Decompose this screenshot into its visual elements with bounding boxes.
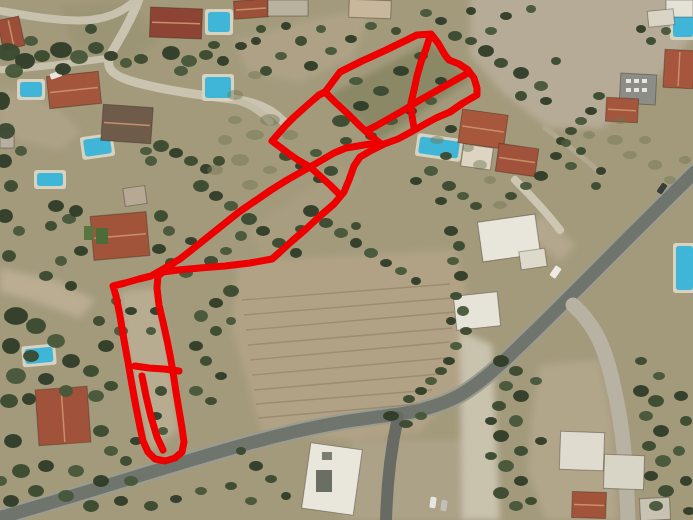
tree — [575, 117, 587, 125]
tree — [4, 180, 18, 192]
tree — [393, 66, 409, 76]
tree — [304, 61, 318, 71]
tree — [679, 156, 691, 164]
tree — [281, 492, 291, 500]
tree — [48, 200, 64, 212]
tree — [513, 390, 529, 402]
building-detail — [626, 88, 631, 92]
tree — [411, 277, 421, 285]
tree — [478, 45, 494, 57]
tree — [565, 162, 577, 170]
building-roof — [603, 454, 644, 489]
tree — [435, 367, 447, 375]
tree — [249, 461, 263, 471]
tree — [215, 372, 227, 380]
tree — [499, 381, 513, 391]
tree — [74, 246, 88, 256]
tree — [399, 420, 413, 428]
tree — [648, 160, 662, 170]
tree — [514, 446, 528, 456]
tree — [226, 317, 236, 325]
tree — [593, 92, 605, 100]
tree — [248, 71, 262, 79]
tree — [275, 52, 287, 60]
tree — [565, 127, 577, 135]
tree — [648, 395, 664, 407]
tree — [38, 460, 54, 472]
tree — [551, 57, 561, 65]
tree — [674, 391, 688, 401]
tree — [505, 192, 517, 200]
tree — [207, 165, 223, 175]
tree — [316, 25, 326, 33]
tree — [213, 156, 225, 166]
tree — [65, 281, 77, 291]
building — [458, 109, 508, 149]
tree — [509, 415, 523, 427]
tree — [104, 51, 118, 61]
tree — [561, 139, 571, 147]
tree — [281, 22, 291, 30]
pool-water — [37, 173, 63, 186]
tree — [174, 66, 188, 76]
tree — [245, 497, 257, 505]
tree — [383, 411, 399, 421]
tree — [445, 125, 457, 133]
tree — [649, 501, 663, 511]
tree — [498, 460, 514, 472]
tree — [6, 368, 26, 384]
building-detail — [322, 452, 332, 460]
tree — [435, 17, 447, 25]
building — [149, 7, 202, 39]
tree — [93, 316, 105, 326]
building — [268, 0, 308, 16]
tree — [290, 248, 302, 258]
tree — [235, 231, 247, 241]
tree — [473, 160, 487, 170]
tree — [4, 434, 22, 448]
building-detail — [634, 88, 639, 92]
tree — [34, 50, 50, 62]
building — [233, 0, 268, 19]
tree — [246, 130, 264, 140]
tree — [265, 475, 277, 483]
building — [519, 248, 547, 269]
building-detail — [626, 79, 631, 83]
tree — [50, 42, 72, 58]
tree — [228, 116, 242, 124]
tree — [440, 152, 452, 160]
tree — [614, 116, 626, 124]
tree — [169, 148, 183, 158]
tree — [120, 456, 132, 466]
tree — [462, 144, 474, 152]
tree — [210, 326, 222, 336]
tree — [514, 476, 528, 486]
tree — [58, 490, 74, 502]
tree — [0, 394, 18, 408]
tree — [295, 36, 307, 46]
swimming-pool — [673, 243, 693, 293]
tree — [635, 357, 647, 365]
tree — [120, 58, 132, 68]
tree — [513, 67, 529, 79]
building-roof — [559, 431, 604, 471]
tree — [435, 197, 447, 205]
tree — [639, 136, 651, 144]
building-roof — [519, 248, 547, 269]
tree — [646, 37, 656, 45]
tree — [88, 42, 104, 54]
tree — [636, 25, 646, 33]
tree — [680, 476, 692, 486]
tree — [5, 64, 23, 78]
tree — [83, 365, 99, 377]
tree — [500, 12, 512, 20]
tree — [492, 401, 506, 411]
tree — [68, 465, 84, 477]
tree — [260, 114, 280, 126]
tree — [218, 135, 232, 145]
swimming-pool — [205, 9, 233, 35]
tree — [93, 475, 109, 487]
tree — [225, 482, 237, 490]
tree — [607, 135, 623, 145]
tree — [184, 156, 198, 166]
tree — [350, 238, 362, 248]
building-detail — [84, 226, 94, 240]
tree — [189, 341, 203, 351]
tree — [223, 285, 239, 297]
tree — [493, 355, 509, 367]
tree — [39, 271, 53, 281]
tree — [70, 50, 88, 64]
tree — [353, 101, 369, 111]
building — [603, 454, 644, 489]
tree — [199, 50, 213, 60]
tree — [38, 373, 54, 385]
tree — [124, 476, 138, 486]
tree — [2, 338, 20, 354]
tree — [644, 471, 658, 481]
building-detail — [96, 228, 108, 244]
tree — [457, 192, 469, 200]
building-detail — [316, 470, 332, 492]
tree — [642, 441, 656, 451]
tree — [658, 485, 674, 497]
tree — [231, 154, 249, 166]
tree — [208, 41, 220, 49]
tree — [673, 446, 685, 456]
tree — [596, 167, 606, 175]
building — [101, 104, 153, 143]
tree — [365, 22, 377, 30]
tree — [12, 464, 30, 478]
tree — [351, 222, 361, 230]
tree — [325, 47, 337, 55]
tree — [55, 256, 67, 266]
tree — [550, 152, 562, 160]
building-roof — [647, 9, 675, 28]
tree — [209, 191, 223, 201]
tree — [256, 25, 266, 33]
tree — [155, 386, 167, 396]
tree — [69, 205, 83, 217]
tree — [623, 151, 637, 159]
tree — [125, 307, 137, 315]
tree — [170, 495, 182, 503]
tree — [251, 37, 261, 45]
tree — [152, 244, 166, 254]
tree — [493, 201, 507, 209]
building — [495, 143, 539, 176]
swimming-pool — [17, 79, 45, 100]
tree — [430, 136, 444, 144]
tree — [530, 377, 542, 385]
tree — [540, 97, 552, 105]
tree — [62, 354, 80, 368]
tree — [443, 357, 455, 365]
building — [647, 9, 675, 28]
tree — [534, 81, 548, 91]
tree — [493, 430, 509, 442]
tree — [162, 46, 180, 60]
tree — [424, 166, 438, 176]
tree — [13, 226, 25, 236]
tree — [134, 54, 148, 64]
parcel-boundary-divider-strip-cross — [135, 366, 179, 371]
tree — [444, 226, 458, 236]
tree — [576, 147, 586, 155]
tree — [334, 228, 348, 238]
tree — [209, 298, 223, 308]
building — [349, 0, 392, 19]
tree — [585, 107, 597, 115]
tree — [494, 58, 508, 68]
tree — [457, 306, 469, 316]
tree — [28, 485, 44, 497]
tree — [220, 247, 232, 255]
tree — [415, 387, 427, 395]
tree — [227, 90, 243, 100]
building-detail — [634, 79, 639, 83]
tree — [205, 397, 217, 405]
tree — [195, 487, 207, 495]
tree — [22, 393, 36, 405]
tree — [485, 27, 497, 35]
tree — [349, 77, 363, 85]
tree — [45, 221, 57, 231]
tree — [364, 248, 378, 258]
tree — [241, 213, 257, 225]
tree — [104, 446, 118, 456]
tree — [153, 140, 169, 152]
tree — [655, 455, 671, 467]
tree — [515, 91, 527, 101]
aerial-photo-canvas — [0, 0, 693, 520]
tree — [55, 63, 71, 75]
tree — [395, 267, 407, 275]
tree — [415, 412, 427, 420]
building-detail — [642, 79, 647, 83]
tree — [104, 381, 118, 391]
tree — [256, 226, 270, 236]
tree — [450, 342, 462, 350]
building-roof — [268, 0, 308, 16]
tree — [235, 42, 247, 50]
swimming-pool — [34, 170, 66, 189]
tree — [484, 176, 496, 184]
tree — [345, 35, 357, 43]
tree — [653, 372, 665, 380]
tree — [2, 250, 16, 262]
tree — [200, 356, 212, 366]
tree — [583, 131, 595, 139]
pool-water — [208, 12, 230, 32]
tree — [24, 36, 38, 46]
tree — [535, 437, 547, 445]
tree — [534, 171, 548, 181]
tree — [460, 327, 472, 335]
tree — [85, 24, 97, 34]
tree — [470, 202, 482, 210]
building — [663, 49, 693, 89]
tree — [193, 180, 209, 192]
tree — [661, 27, 671, 35]
tree — [26, 318, 46, 334]
tree — [450, 292, 462, 300]
tree — [446, 317, 456, 325]
tree — [4, 307, 28, 325]
tree — [391, 27, 401, 35]
building-roof — [349, 0, 392, 19]
tree — [236, 447, 246, 455]
tree — [526, 5, 536, 13]
tree — [520, 182, 532, 190]
tree — [145, 156, 157, 166]
tree — [3, 495, 19, 507]
tree — [680, 416, 692, 426]
tree — [154, 210, 168, 222]
tree — [420, 9, 432, 17]
tree — [194, 310, 208, 322]
tree — [653, 425, 669, 437]
tree — [466, 7, 476, 15]
tree — [163, 226, 175, 236]
tree — [485, 452, 497, 460]
tree — [59, 385, 73, 397]
tree — [442, 181, 456, 191]
tree — [144, 501, 158, 511]
tree — [403, 395, 415, 403]
tree — [140, 147, 152, 155]
tree — [189, 386, 203, 396]
tree — [453, 241, 465, 251]
tree — [639, 411, 653, 421]
pool-water — [676, 246, 693, 290]
roof-ridge — [574, 504, 604, 505]
building — [123, 186, 147, 207]
building — [559, 431, 604, 471]
tree — [242, 180, 258, 190]
tree — [465, 37, 477, 45]
tree — [447, 257, 459, 265]
tree — [380, 259, 392, 267]
tree — [425, 377, 437, 385]
pool-water — [20, 82, 42, 97]
tree — [664, 176, 676, 184]
tree — [485, 417, 497, 425]
tree — [373, 86, 389, 96]
tree — [181, 55, 197, 67]
satellite-image — [0, 0, 693, 520]
tree — [454, 271, 468, 281]
tree — [217, 56, 229, 66]
building — [572, 491, 607, 518]
tree — [324, 166, 338, 176]
tree — [525, 497, 537, 505]
tree — [15, 146, 27, 156]
tree — [591, 182, 601, 190]
tree — [224, 201, 238, 211]
tree — [88, 390, 104, 402]
building-detail — [642, 88, 647, 92]
tree — [146, 327, 156, 335]
tree — [509, 366, 523, 376]
building-roof — [123, 186, 147, 207]
tree — [263, 166, 277, 174]
tree — [83, 500, 99, 512]
tree — [114, 496, 128, 506]
tree — [98, 340, 114, 352]
tree — [410, 177, 422, 185]
tree — [633, 385, 649, 397]
tree — [93, 425, 109, 437]
tree — [23, 350, 39, 362]
tree — [47, 334, 65, 348]
tree — [310, 149, 322, 157]
tree — [493, 487, 509, 499]
tree — [509, 501, 523, 511]
tree — [448, 31, 462, 41]
